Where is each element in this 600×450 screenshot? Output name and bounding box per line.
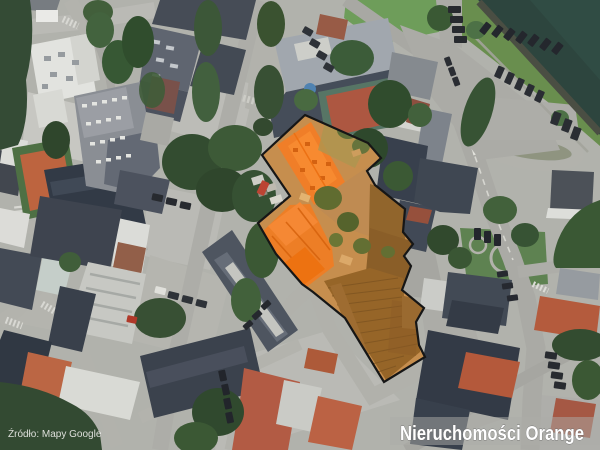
svg-text:Nieruchomości Orange: Nieruchomości Orange (400, 422, 584, 445)
svg-text:Źródło: Mapy Google: Źródło: Mapy Google (8, 427, 102, 440)
